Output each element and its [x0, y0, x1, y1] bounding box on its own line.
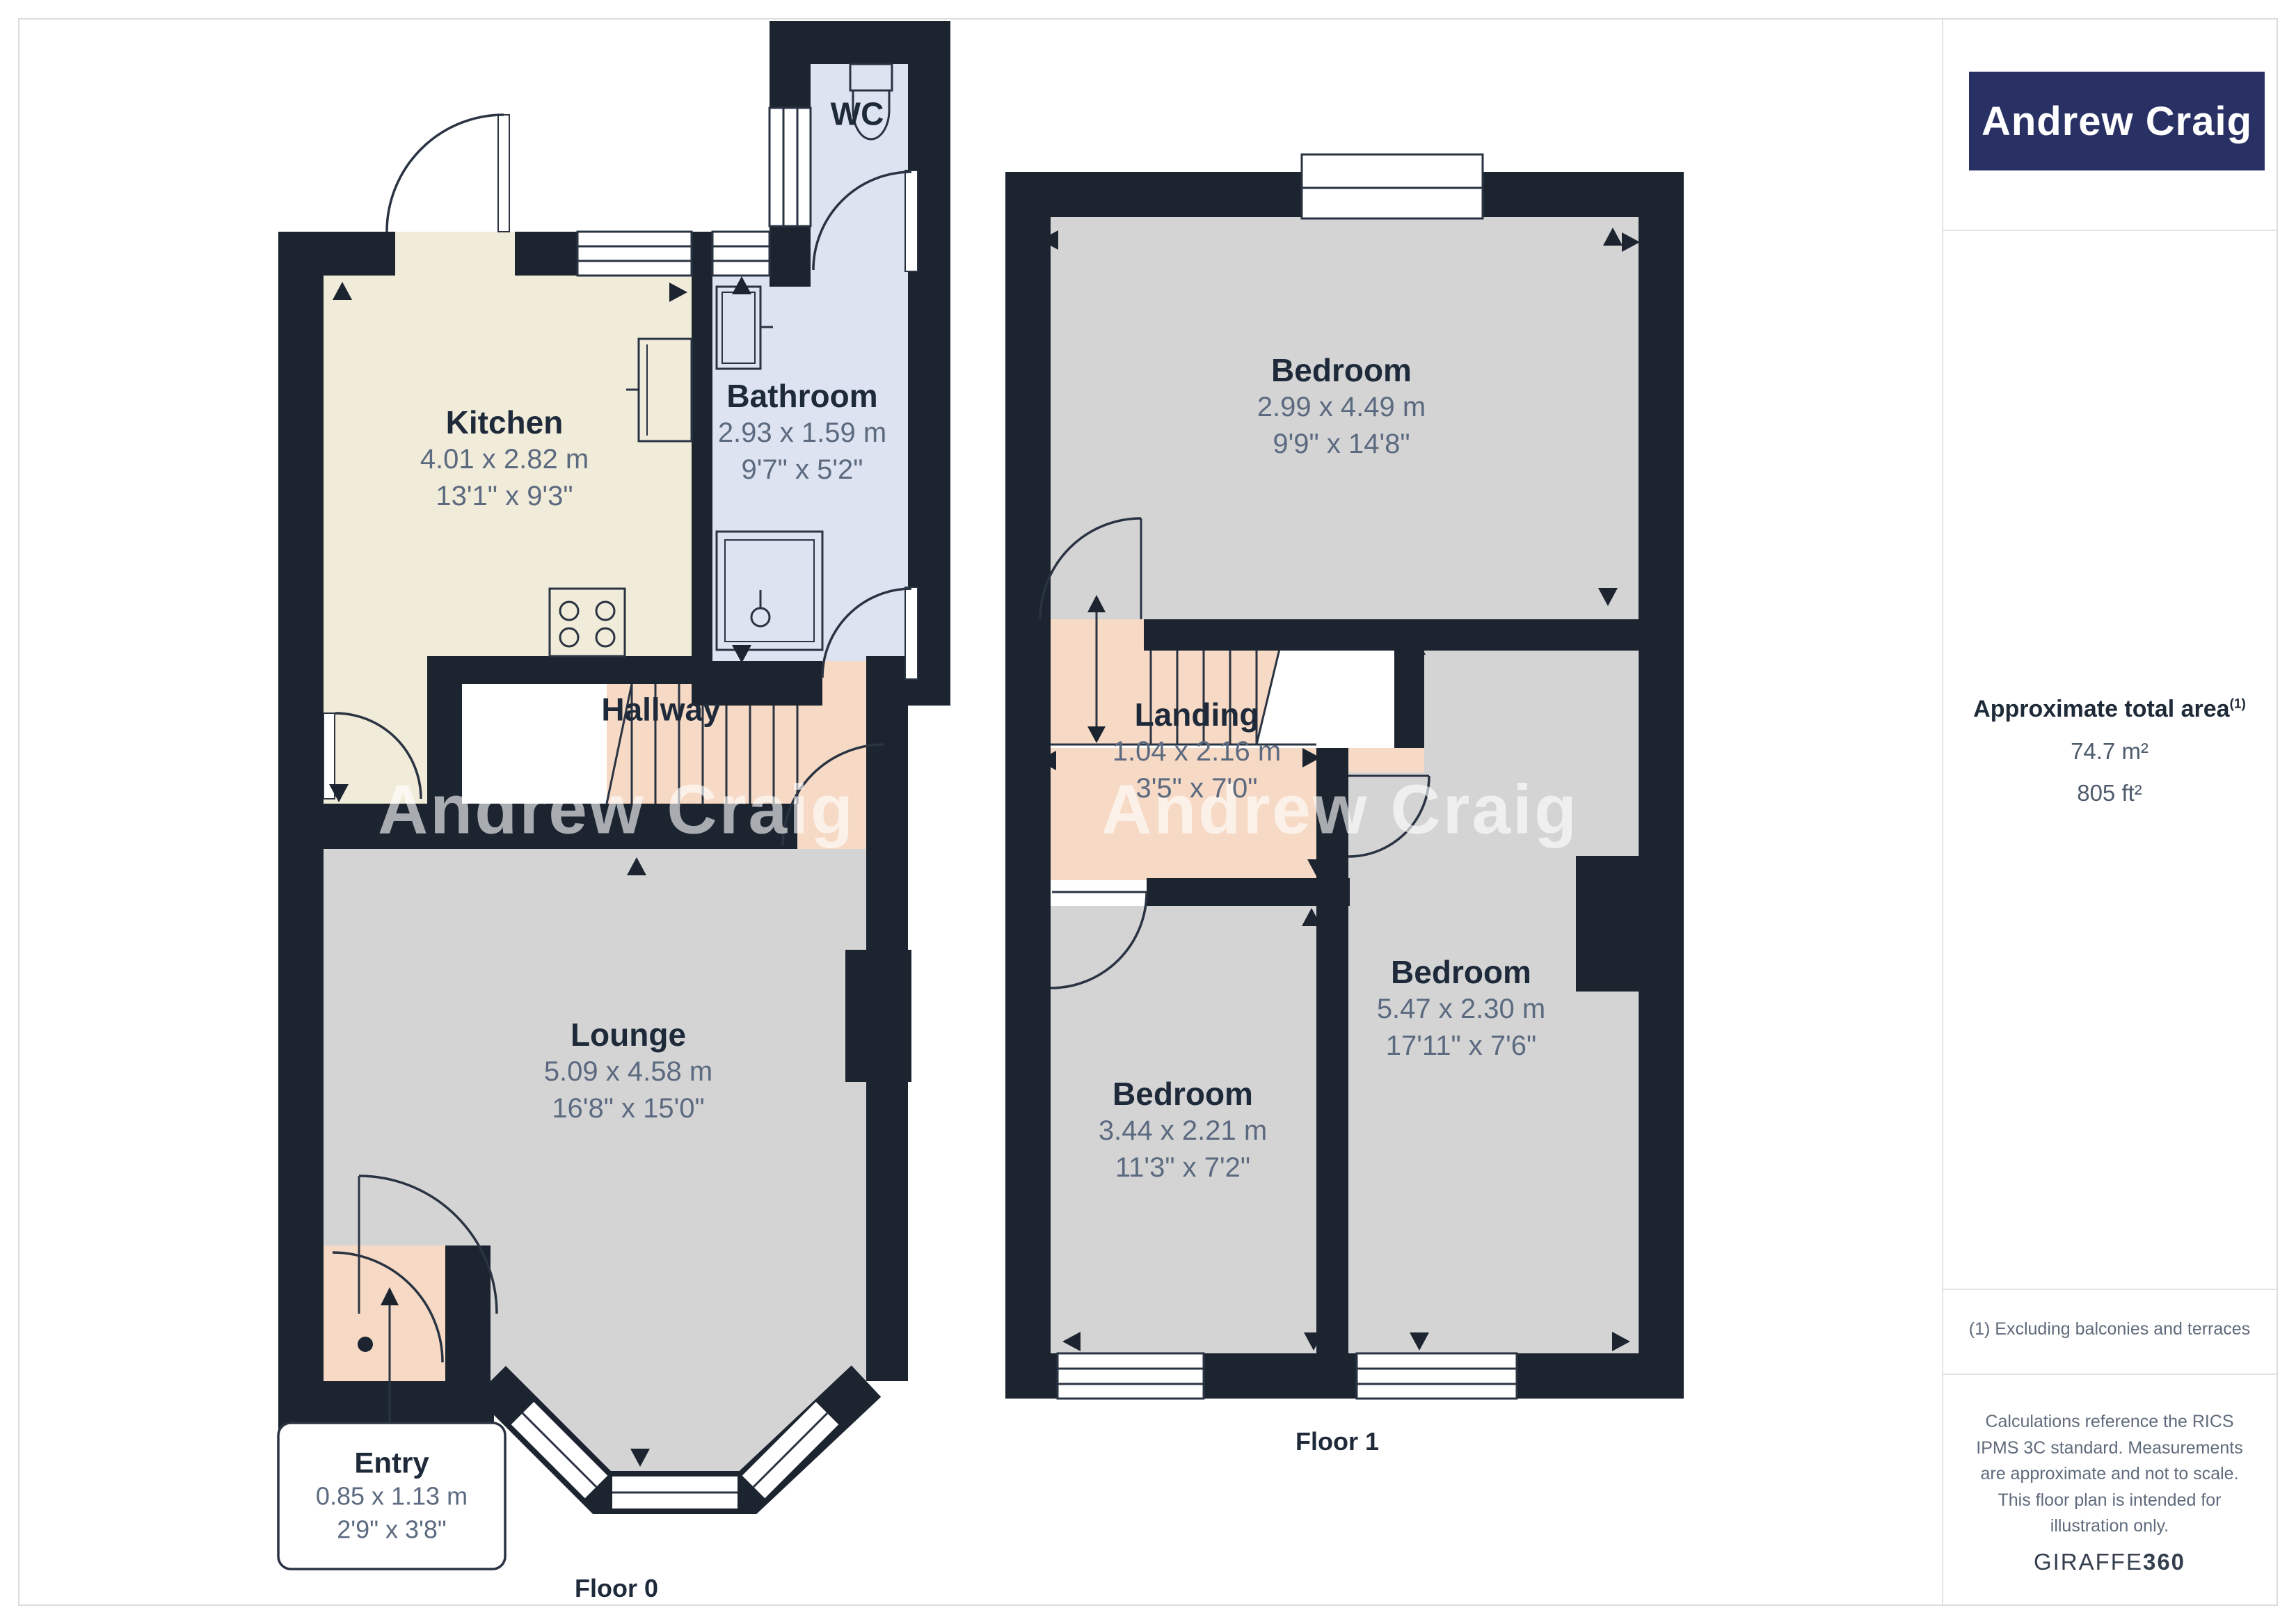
sidebar-divider — [1942, 19, 1943, 1605]
bedroom-right-threshold — [1348, 748, 1429, 772]
room-dims-metric: 5.47 x 2.30 m — [1377, 991, 1545, 1028]
landing-label: Landing 1.04 x 2.16 m 3'5" x 7'0" — [1113, 696, 1281, 806]
footnote-marker: (1) — [2230, 697, 2246, 712]
room-name: Bedroom — [1099, 1076, 1267, 1113]
room-name: Bedroom — [1257, 352, 1426, 389]
room-dims-imperial: 13'1" x 9'3" — [420, 477, 589, 514]
wc-label: WC — [831, 96, 884, 133]
room-dims-metric: 1.04 x 2.16 m — [1113, 733, 1281, 770]
total-area-title: Approximate total area(1) — [1943, 696, 2277, 723]
total-area-metric: 74.7 m² — [1943, 738, 2277, 765]
room-dims-metric: 2.99 x 4.49 m — [1257, 389, 1426, 426]
wc-door-leaf — [905, 170, 918, 271]
sidebar-line-above-footnote — [1943, 1289, 2277, 1290]
room-dims-metric: 3.44 x 2.21 m — [1099, 1113, 1267, 1149]
provider-logo-bold: 360 — [2143, 1549, 2185, 1575]
room-name: Bedroom — [1377, 954, 1545, 991]
total-area-block: Approximate total area(1) 74.7 m² 805 ft… — [1943, 696, 2277, 806]
entry-label: Entry 0.85 x 1.13 m 2'9" x 3'8" — [316, 1446, 468, 1545]
bedroom-top-label: Bedroom 2.99 x 4.49 m 9'9" x 14'8" — [1257, 352, 1426, 462]
chimney-breast-floor1 — [1576, 856, 1639, 992]
total-area-imperial: 805 ft² — [1943, 780, 2277, 806]
room-name: Landing — [1113, 696, 1281, 733]
room-name: Bathroom — [718, 378, 886, 415]
stove-icon — [550, 589, 625, 656]
agency-logo: Andrew Craig — [1969, 72, 2265, 170]
room-name: Hallway — [601, 692, 720, 729]
front-door-knob — [358, 1337, 373, 1352]
sidebar-line-under-logo — [1943, 230, 2277, 231]
floorplan-page: Andrew Craig Andrew Craig Kitchen 4.01 x… — [0, 0, 2296, 1624]
room-dims-imperial: 16'8" x 15'0" — [544, 1090, 712, 1127]
measurement-disclaimer: Calculations reference the RICS IPMS 3C … — [1963, 1409, 2256, 1540]
floor0-label: Floor 0 — [575, 1574, 658, 1603]
room-dims-imperial: 11'3" x 7'2" — [1099, 1149, 1267, 1186]
room-dims-metric: 0.85 x 1.13 m — [316, 1480, 468, 1513]
sidebar-line-below-footnote — [1943, 1374, 2277, 1375]
back-door-leaf — [498, 115, 509, 232]
kitchen-door-threshold — [395, 232, 515, 276]
room-dims-imperial: 9'9" x 14'8" — [1257, 425, 1426, 462]
balcony-footnote: (1) Excluding balconies and terraces — [1943, 1319, 2277, 1339]
room-dims-imperial: 3'5" x 7'0" — [1113, 770, 1281, 806]
room-dims-imperial: 17'11" x 7'6" — [1377, 1027, 1545, 1064]
provider-logo-plain: GIRAFFE — [2034, 1549, 2143, 1575]
provider-logo: GIRAFFE360 — [1943, 1549, 2277, 1575]
room-dims-metric: 5.09 x 4.58 m — [544, 1053, 712, 1090]
watermark-floor0: Andrew Craig — [378, 770, 855, 850]
room-dims-imperial: 2'9" x 3'8" — [316, 1513, 468, 1546]
bedroom-left-label: Bedroom 3.44 x 2.21 m 11'3" x 7'2" — [1099, 1076, 1267, 1186]
back-door-arc — [387, 115, 504, 232]
room-name: WC — [831, 96, 884, 133]
room-name: Lounge — [544, 1017, 712, 1053]
room-dims-imperial: 9'7" x 5'2" — [718, 451, 886, 488]
hallway-label: Hallway — [601, 692, 720, 729]
floor1-label: Floor 1 — [1296, 1427, 1379, 1456]
bedroom-right-label: Bedroom 5.47 x 2.30 m 17'11" x 7'6" — [1377, 954, 1545, 1064]
bathroom-door-leaf — [905, 587, 918, 679]
lounge-label: Lounge 5.09 x 4.58 m 16'8" x 15'0" — [544, 1017, 712, 1127]
room-name: Entry — [316, 1446, 468, 1479]
agency-logo-text: Andrew Craig — [1982, 98, 2252, 145]
room-dims-metric: 4.01 x 2.82 m — [420, 441, 589, 478]
chimney-breast-floor0 — [845, 950, 911, 1082]
bathroom-label: Bathroom 2.93 x 1.59 m 9'7" x 5'2" — [718, 378, 886, 488]
room-name: Kitchen — [420, 404, 589, 441]
kitchen-label: Kitchen 4.01 x 2.82 m 13'1" x 9'3" — [420, 404, 589, 514]
room-dims-metric: 2.93 x 1.59 m — [718, 415, 886, 452]
